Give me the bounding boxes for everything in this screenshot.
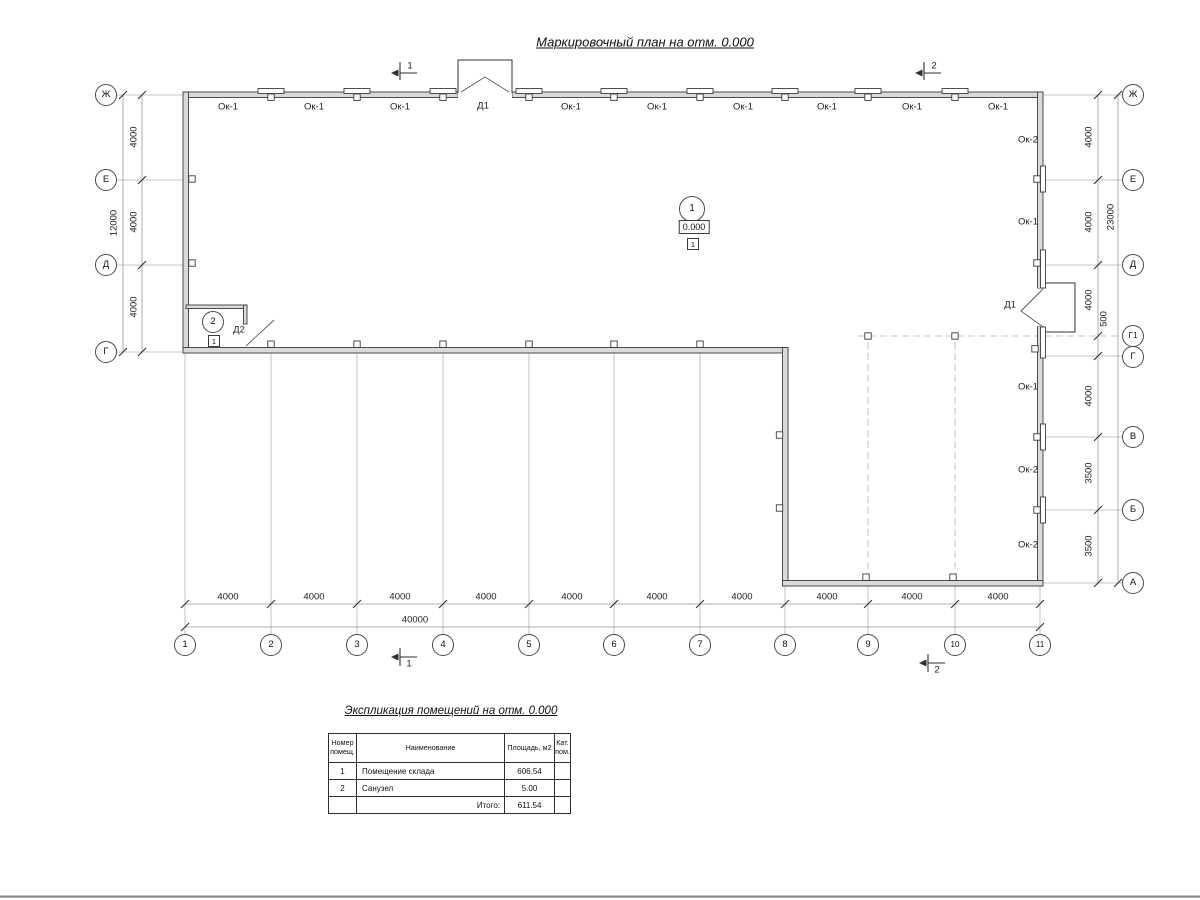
cell-number: 2 bbox=[329, 780, 357, 797]
schedule-title: Экспликация помещений на отм. 0.000 bbox=[345, 705, 558, 717]
table-total-row: Итого: 611.54 bbox=[329, 797, 571, 814]
room-number-bubble: 1 bbox=[679, 196, 705, 222]
floor-type-mark: 1 bbox=[208, 335, 220, 347]
window-label: Ок-1 bbox=[390, 102, 410, 113]
room-number-bubble: 2 bbox=[202, 311, 224, 333]
cell-number: 1 bbox=[329, 763, 357, 780]
dim-label: 4000 bbox=[987, 592, 1008, 603]
dim-label: 4000 bbox=[303, 592, 324, 603]
dim-label: 500 bbox=[1099, 311, 1110, 327]
window-label: Ок-1 bbox=[218, 102, 238, 113]
dim-label: 4000 bbox=[1084, 211, 1095, 232]
col-header-name: Наименование bbox=[357, 734, 505, 763]
window-label: Ок-1 bbox=[1018, 217, 1038, 228]
door-label: Д2 bbox=[233, 325, 245, 336]
col-header-area: Площадь, м2 bbox=[505, 734, 555, 763]
floor-type-mark: 1 bbox=[687, 238, 699, 250]
window-label: Ок-2 bbox=[1018, 540, 1038, 551]
door-label: Д1 bbox=[1004, 300, 1016, 311]
dim-label: 4000 bbox=[646, 592, 667, 603]
grid-lines bbox=[117, 95, 1122, 634]
dim-label: 4000 bbox=[217, 592, 238, 603]
dim-label: 4000 bbox=[129, 296, 140, 317]
axis-bubble: 6 bbox=[603, 634, 625, 656]
section-number: 1 bbox=[407, 61, 412, 72]
col-header-number: Номер помещ. bbox=[329, 734, 357, 763]
axis-bubble: 11 bbox=[1029, 634, 1051, 656]
dim-label: 4000 bbox=[1084, 289, 1095, 310]
dim-label: 4000 bbox=[129, 211, 140, 232]
axis-bubble: В bbox=[1122, 426, 1144, 448]
dim-label: 4000 bbox=[475, 592, 496, 603]
window-label: Ок-1 bbox=[304, 102, 324, 113]
axis-bubble: Д bbox=[1122, 254, 1144, 276]
section-number: 2 bbox=[931, 61, 936, 72]
window-label: Ок-1 bbox=[988, 102, 1008, 113]
window-label: Ок-1 bbox=[1018, 382, 1038, 393]
axis-bubble: Г bbox=[1122, 346, 1144, 368]
dim-label: 4000 bbox=[1084, 385, 1095, 406]
dim-label: 4000 bbox=[901, 592, 922, 603]
axis-bubble: А bbox=[1122, 572, 1144, 594]
cell-empty bbox=[555, 797, 571, 814]
axis-bubble: 3 bbox=[346, 634, 368, 656]
cad-plan-viewport: Маркировочный план на отм. 0.000 Ок-1 Ок… bbox=[0, 0, 1200, 900]
window-label: Ок-1 bbox=[647, 102, 667, 113]
axis-bubble: 9 bbox=[857, 634, 879, 656]
dim-total-label: 12000 bbox=[109, 210, 120, 236]
dim-label: 4000 bbox=[816, 592, 837, 603]
cell-category bbox=[555, 780, 571, 797]
walls bbox=[183, 92, 1043, 586]
door-swing-lines bbox=[246, 77, 1043, 346]
axis-bubble: Е bbox=[95, 169, 117, 191]
axis-bubble: Б bbox=[1122, 499, 1144, 521]
axis-bubble: 5 bbox=[518, 634, 540, 656]
cell-area: 5.00 bbox=[505, 780, 555, 797]
axis-bubble: Г1 bbox=[1122, 325, 1144, 347]
axis-bubble: Г bbox=[95, 341, 117, 363]
window-label: Ок-1 bbox=[817, 102, 837, 113]
axis-bubble: Е bbox=[1122, 169, 1144, 191]
axis-bubble: Ж bbox=[1122, 84, 1144, 106]
dimension-lines bbox=[123, 95, 1118, 627]
axis-bubble: Д bbox=[95, 254, 117, 276]
cell-area: 606.54 bbox=[505, 763, 555, 780]
dimension-ticks bbox=[119, 91, 1122, 631]
plan-title: Маркировочный план на отм. 0.000 bbox=[536, 35, 754, 50]
cell-name: Помещение склада bbox=[357, 763, 505, 780]
door-vestibules bbox=[458, 60, 1075, 332]
cell-empty bbox=[329, 797, 357, 814]
door-label: Д1 bbox=[477, 101, 489, 112]
axis-bubble: 1 bbox=[174, 634, 196, 656]
table-row: 1 Помещение склада 606.54 bbox=[329, 763, 571, 780]
window-label: Ок-1 bbox=[561, 102, 581, 113]
window-label: Ок-1 bbox=[902, 102, 922, 113]
dim-total-label: 23000 bbox=[1106, 204, 1117, 230]
dim-label: 4000 bbox=[129, 126, 140, 147]
dim-label: 3500 bbox=[1084, 535, 1095, 556]
axis-bubble: 4 bbox=[432, 634, 454, 656]
table-row: 2 Санузел 5.00 bbox=[329, 780, 571, 797]
axis-bubble: 10 bbox=[944, 634, 966, 656]
col-header-category: Кат. пом. bbox=[555, 734, 571, 763]
dim-label: 3500 bbox=[1084, 462, 1095, 483]
dim-total-label: 40000 bbox=[402, 615, 428, 626]
window-label: Ок-2 bbox=[1018, 465, 1038, 476]
dim-label: 4000 bbox=[731, 592, 752, 603]
window-column-glyphs bbox=[189, 89, 1046, 581]
table-header-row: Номер помещ. Наименование Площадь, м2 Ка… bbox=[329, 734, 571, 763]
cell-category bbox=[555, 763, 571, 780]
axis-bubble: Ж bbox=[95, 84, 117, 106]
cell-name: Санузел bbox=[357, 780, 505, 797]
page-edge-line bbox=[0, 896, 1200, 898]
total-label: Итого: bbox=[357, 797, 505, 814]
window-label: Ок-2 bbox=[1018, 135, 1038, 146]
window-label: Ок-1 bbox=[733, 102, 753, 113]
section-number: 1 bbox=[406, 659, 411, 670]
total-value: 611.54 bbox=[505, 797, 555, 814]
dim-label: 4000 bbox=[1084, 126, 1095, 147]
axis-bubble: 7 bbox=[689, 634, 711, 656]
door-openings bbox=[458, 91, 1044, 326]
axis-bubble: 8 bbox=[774, 634, 796, 656]
dim-label: 4000 bbox=[389, 592, 410, 603]
dim-label: 4000 bbox=[561, 592, 582, 603]
room-schedule-table: Номер помещ. Наименование Площадь, м2 Ка… bbox=[328, 733, 571, 814]
axis-bubble: 2 bbox=[260, 634, 282, 656]
elevation-mark: 0.000 bbox=[679, 220, 710, 234]
section-number: 2 bbox=[934, 665, 939, 676]
